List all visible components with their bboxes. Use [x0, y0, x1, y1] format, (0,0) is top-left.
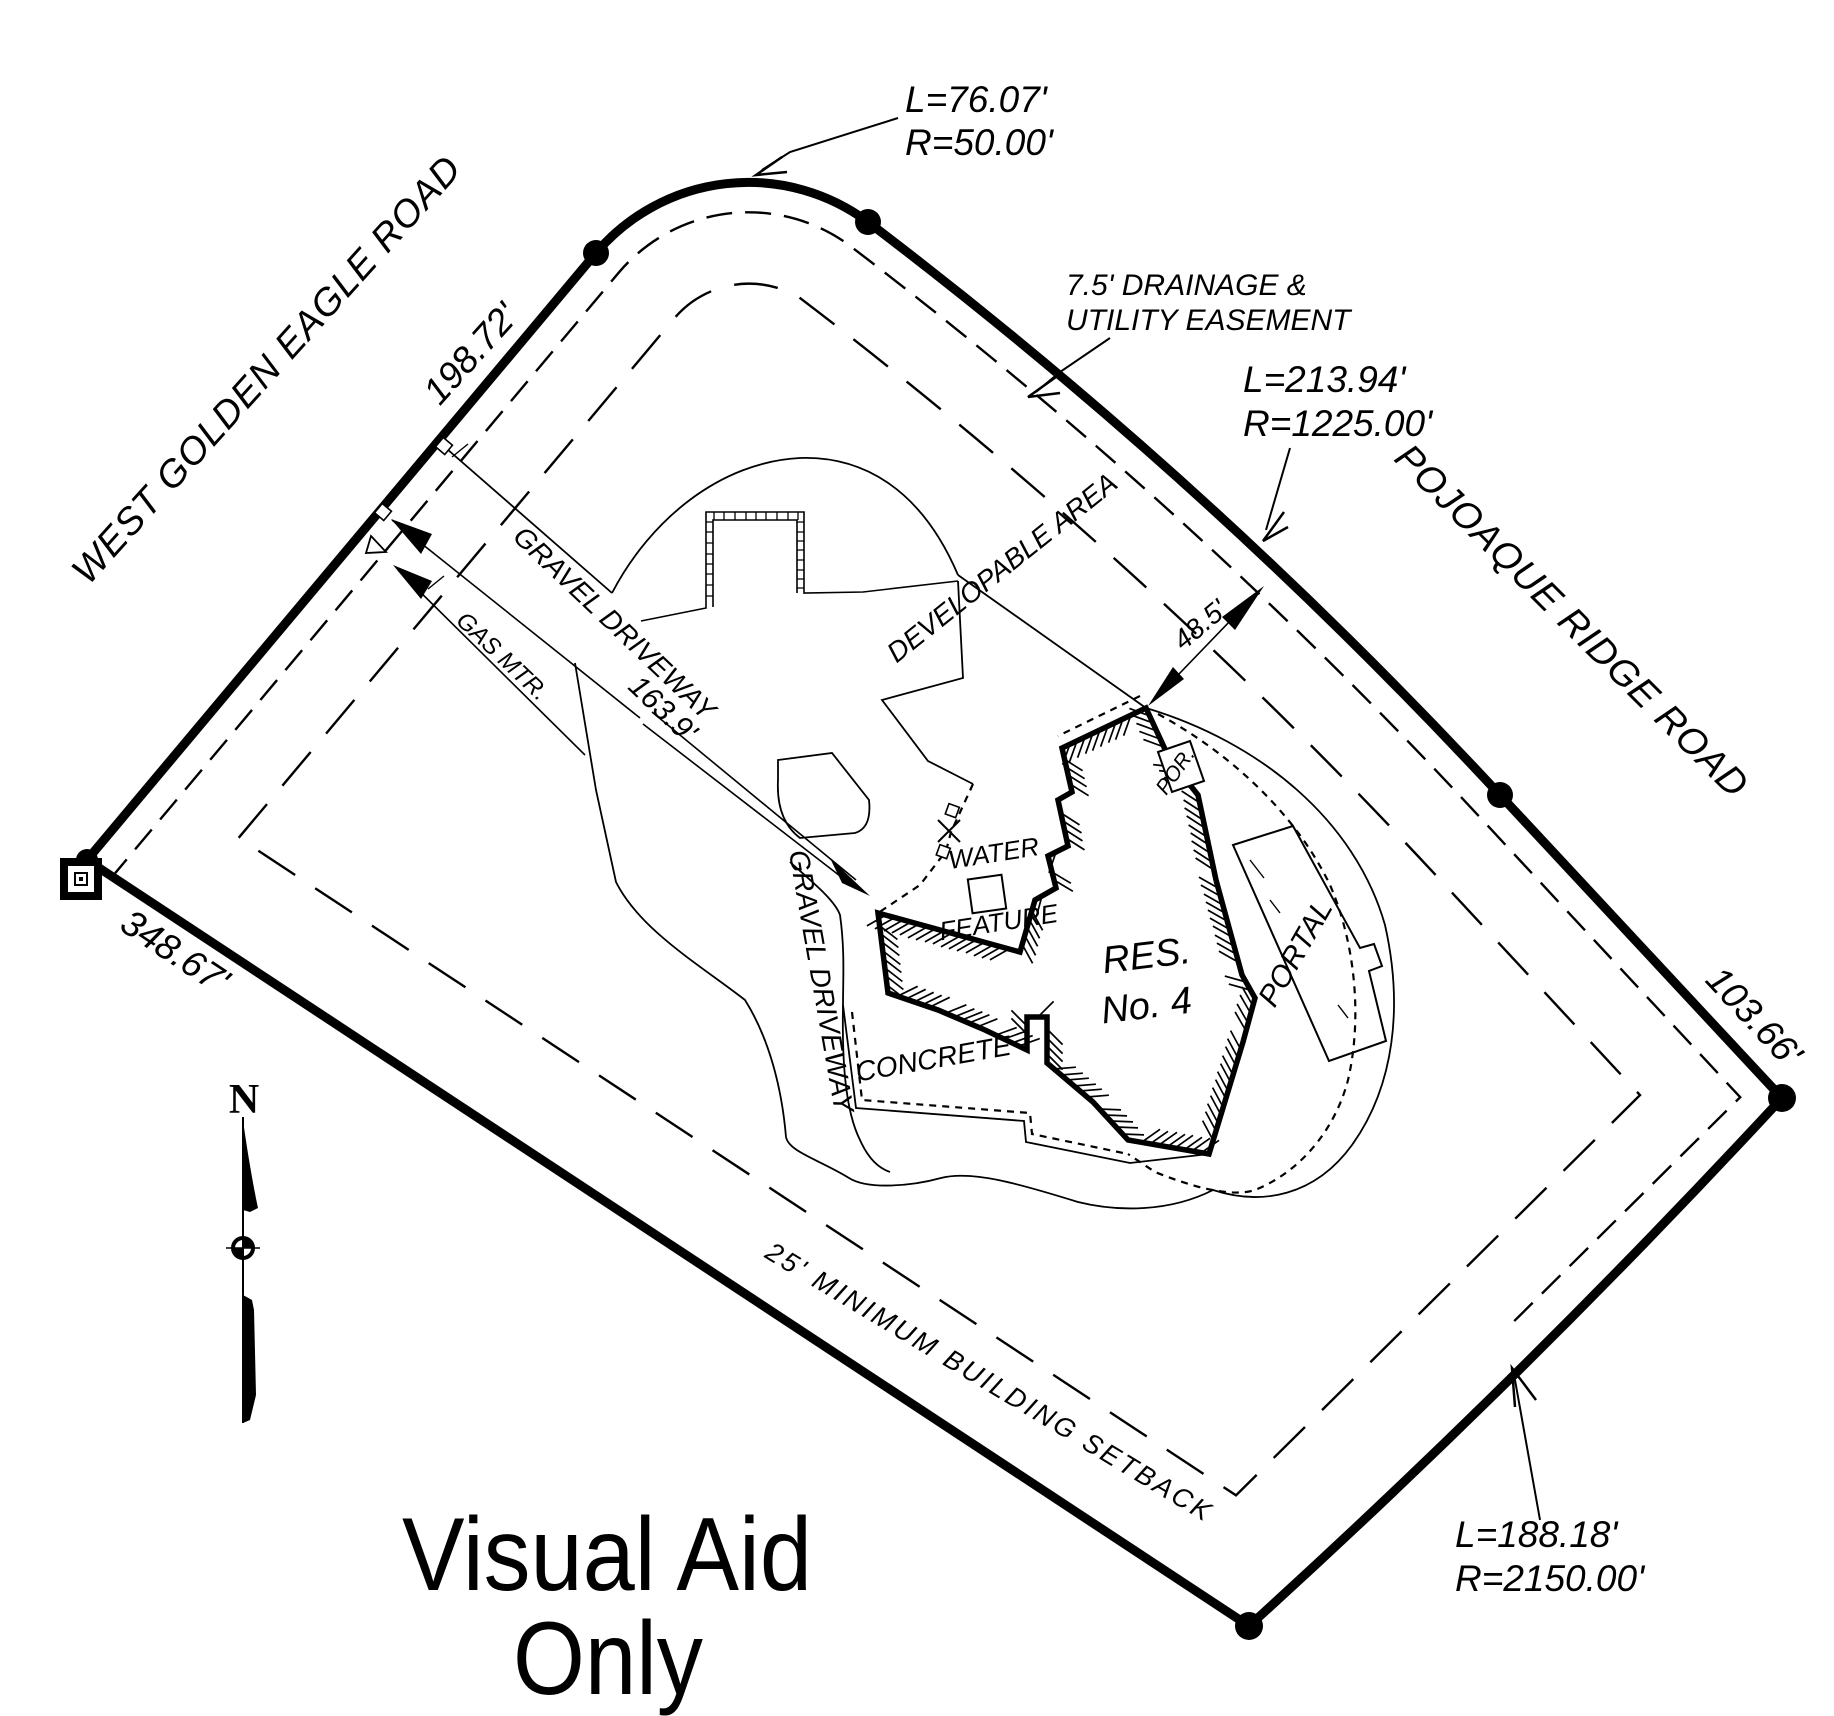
svg-text:7.5' DRAINAGE &: 7.5' DRAINAGE &	[1066, 269, 1307, 302]
svg-text:L=76.07': L=76.07'	[905, 79, 1049, 120]
svg-text:R=1225.00': R=1225.00'	[1243, 403, 1434, 444]
svg-text:R=2150.00': R=2150.00'	[1455, 1558, 1646, 1599]
svg-text:L=188.18': L=188.18'	[1455, 1514, 1619, 1555]
svg-text:N: N	[229, 1077, 259, 1123]
svg-text:Only: Only	[513, 1601, 703, 1716]
svg-text:UTILITY EASEMENT: UTILITY EASEMENT	[1066, 304, 1353, 337]
svg-text:Visual Aid: Visual Aid	[402, 1497, 812, 1613]
svg-text:R=50.00': R=50.00'	[905, 122, 1055, 163]
svg-text:L=213.94': L=213.94'	[1243, 359, 1407, 400]
